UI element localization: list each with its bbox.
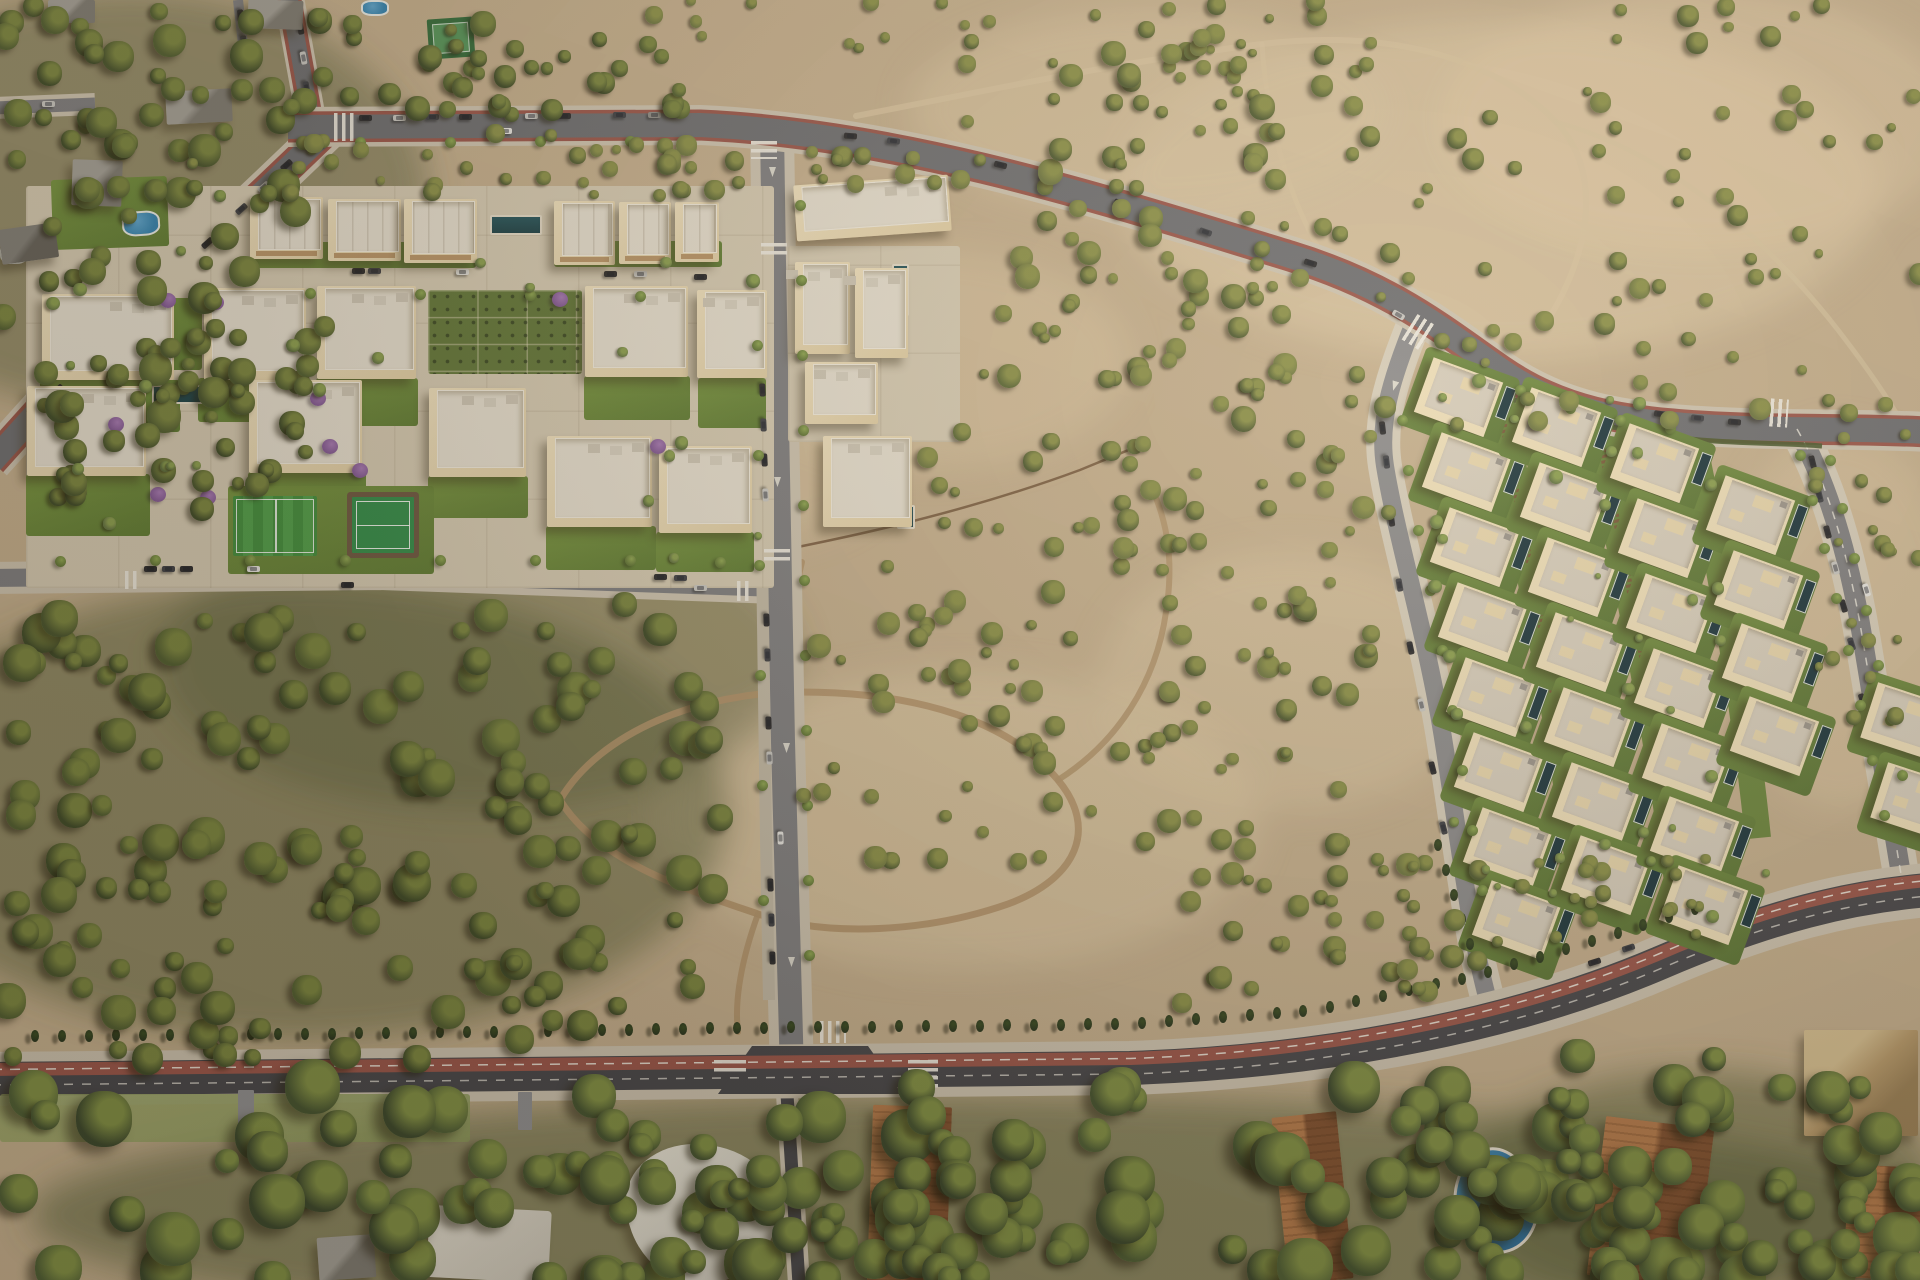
- tree: [1615, 4, 1627, 16]
- tree: [1332, 226, 1348, 242]
- tree: [1171, 625, 1191, 645]
- tree: [502, 996, 520, 1014]
- tree: [41, 877, 77, 913]
- tree: [1366, 1157, 1407, 1198]
- tree: [314, 316, 336, 338]
- tree: [1374, 396, 1396, 418]
- tree: [1207, 0, 1226, 15]
- tree: [1823, 135, 1836, 148]
- tree: [1277, 1238, 1333, 1280]
- tree: [596, 1109, 629, 1142]
- tree: [1257, 878, 1272, 893]
- tree: [934, 607, 953, 626]
- tree: [1796, 101, 1813, 118]
- tree: [1859, 1112, 1902, 1155]
- cypress-tree: [139, 1029, 147, 1041]
- tree: [1583, 87, 1592, 96]
- tree: [1345, 526, 1356, 537]
- tree: [1434, 1195, 1480, 1241]
- tree: [1243, 875, 1254, 886]
- tree: [685, 161, 698, 174]
- tree: [700, 1211, 738, 1249]
- tree: [1673, 196, 1684, 207]
- tree: [181, 962, 213, 994]
- tree: [1215, 99, 1226, 110]
- tree: [103, 430, 124, 451]
- tree: [259, 77, 285, 103]
- tree: [1840, 404, 1858, 422]
- tree: [1823, 1125, 1863, 1165]
- tree: [1291, 269, 1309, 287]
- tree: [1328, 1061, 1380, 1113]
- tree: [965, 1193, 1008, 1236]
- tree: [917, 447, 939, 469]
- cypress-tree: [733, 1022, 741, 1034]
- tree: [1462, 148, 1484, 170]
- tree: [643, 495, 655, 507]
- tree: [348, 849, 366, 867]
- tree: [35, 1245, 81, 1280]
- cypress-tree: [1562, 943, 1570, 955]
- tree: [1138, 224, 1161, 247]
- tree: [958, 55, 975, 72]
- tree: [536, 171, 550, 185]
- tree: [61, 130, 81, 150]
- tree: [37, 61, 62, 86]
- tree: [1349, 366, 1366, 383]
- tree: [356, 1180, 390, 1214]
- street-tree: [1457, 765, 1468, 776]
- tree: [43, 217, 62, 236]
- tree: [1834, 538, 1842, 546]
- tree: [187, 158, 198, 169]
- tree: [1101, 441, 1121, 461]
- tree: [981, 647, 993, 659]
- cypress-tree: [1246, 1009, 1254, 1021]
- tree: [1592, 144, 1606, 158]
- tree: [1221, 284, 1246, 309]
- tree: [1742, 1240, 1778, 1276]
- tree: [62, 758, 90, 786]
- cypress-tree: [58, 1030, 66, 1042]
- tree: [1462, 337, 1477, 352]
- tree: [286, 422, 304, 440]
- tree: [1567, 616, 1573, 622]
- tree: [1162, 2, 1176, 16]
- tree: [1314, 45, 1334, 65]
- tree: [176, 246, 186, 256]
- tree: [1675, 1102, 1710, 1137]
- tree: [1069, 200, 1087, 218]
- tree: [1706, 910, 1719, 923]
- cypress-tree: [1273, 1007, 1281, 1019]
- tree: [674, 672, 703, 701]
- tree: [474, 1188, 514, 1228]
- tree: [109, 1196, 145, 1232]
- tree: [1041, 580, 1065, 604]
- tree: [1520, 392, 1535, 407]
- tree: [1133, 95, 1149, 111]
- tree: [1686, 899, 1697, 910]
- tree: [249, 1174, 305, 1230]
- tree: [1346, 147, 1359, 160]
- tree: [120, 836, 138, 854]
- tree: [35, 109, 52, 126]
- tree: [237, 747, 260, 770]
- tree: [1549, 889, 1557, 897]
- tree: [1838, 432, 1850, 444]
- tree: [1590, 92, 1611, 113]
- street-tree: [150, 555, 161, 566]
- tree: [707, 804, 733, 830]
- tree: [1438, 393, 1447, 402]
- tree: [807, 634, 831, 658]
- tree: [1443, 650, 1456, 663]
- tree: [1130, 365, 1152, 387]
- tree: [249, 1018, 270, 1039]
- tree: [695, 726, 723, 754]
- tree: [881, 560, 894, 573]
- tree: [472, 67, 485, 80]
- tree: [41, 600, 78, 637]
- tree: [536, 882, 553, 899]
- tree: [1366, 911, 1384, 929]
- tree: [313, 383, 327, 397]
- tree: [1444, 909, 1466, 931]
- street-tree: [435, 555, 446, 566]
- tree: [1749, 398, 1771, 420]
- tree: [660, 257, 671, 268]
- street-tree: [1861, 605, 1872, 616]
- tree: [31, 1100, 60, 1129]
- tree: [1424, 1246, 1461, 1280]
- tree: [1157, 809, 1181, 833]
- tree: [669, 553, 679, 563]
- tree: [1162, 595, 1178, 611]
- tree: [690, 1134, 716, 1160]
- cypress-tree: [1326, 1001, 1334, 1013]
- tree: [485, 796, 507, 818]
- tree: [592, 32, 607, 47]
- tree: [205, 411, 218, 424]
- tree: [569, 147, 586, 164]
- tree: [295, 633, 331, 669]
- tree: [1412, 982, 1426, 996]
- tree: [439, 101, 456, 118]
- tree: [86, 107, 117, 138]
- tree: [1345, 395, 1357, 407]
- tree: [853, 43, 863, 53]
- tree: [160, 338, 180, 358]
- tree: [675, 436, 688, 449]
- tree: [1581, 910, 1598, 927]
- tree: [542, 1010, 562, 1030]
- tree: [1560, 1039, 1594, 1073]
- cypress-tree: [1057, 1019, 1065, 1031]
- tree: [1548, 1087, 1571, 1110]
- tree: [1363, 644, 1377, 658]
- tree: [1468, 1168, 1497, 1197]
- tree: [192, 470, 214, 492]
- street-tree: [1413, 525, 1424, 536]
- tree: [796, 788, 811, 803]
- street-tree: [1837, 503, 1848, 514]
- street-tree: [1819, 543, 1830, 554]
- tree: [46, 297, 60, 311]
- tree: [215, 123, 233, 141]
- tree: [908, 604, 926, 622]
- jacaranda-tree: [150, 487, 166, 502]
- tree: [1534, 858, 1545, 869]
- tree: [1221, 566, 1234, 579]
- tree: [403, 1045, 430, 1072]
- tree: [215, 1149, 240, 1174]
- tree: [65, 653, 82, 670]
- cypress-tree: [301, 1028, 309, 1040]
- tree: [247, 715, 272, 740]
- tree: [1138, 21, 1155, 38]
- tree: [927, 848, 948, 869]
- tree: [329, 1037, 361, 1069]
- tree: [8, 150, 27, 169]
- tree: [1172, 537, 1187, 552]
- tree: [1717, 0, 1735, 16]
- tree: [1230, 56, 1248, 74]
- tree: [460, 161, 474, 175]
- tree: [231, 79, 253, 101]
- tree: [1096, 1190, 1150, 1244]
- tree: [1391, 1106, 1421, 1136]
- tree: [883, 1189, 919, 1225]
- tree: [453, 622, 470, 639]
- street-tree: [757, 780, 768, 791]
- tree: [494, 65, 516, 87]
- tree: [931, 477, 948, 494]
- tree: [214, 190, 226, 202]
- tree: [112, 134, 137, 159]
- tree: [629, 137, 645, 153]
- tree: [217, 938, 234, 955]
- tree: [1492, 936, 1503, 947]
- tree: [1449, 817, 1459, 827]
- tree: [161, 77, 185, 101]
- tree: [832, 154, 842, 164]
- tree: [1186, 501, 1205, 520]
- tree: [343, 15, 362, 34]
- tree: [1276, 699, 1297, 720]
- tree: [1190, 533, 1207, 550]
- tree: [1015, 264, 1040, 289]
- tree: [1416, 1127, 1453, 1164]
- tree: [1670, 868, 1683, 881]
- street-tree: [1897, 770, 1908, 781]
- tree: [1344, 96, 1364, 116]
- tree: [638, 1167, 676, 1205]
- tree: [1325, 833, 1348, 856]
- tree: [1254, 597, 1267, 610]
- tree: [1594, 313, 1615, 334]
- tree: [0, 1174, 38, 1213]
- tree: [1257, 655, 1280, 678]
- tree: [1825, 651, 1840, 666]
- street-tree: [797, 350, 808, 361]
- street-tree: [625, 555, 636, 566]
- street-tree: [340, 555, 351, 566]
- tree: [541, 99, 563, 121]
- tree: [612, 592, 637, 617]
- tree: [1016, 736, 1032, 752]
- tree: [746, 1155, 779, 1188]
- cypress-tree: [463, 1026, 471, 1038]
- tree: [292, 975, 322, 1005]
- tree: [995, 305, 1012, 322]
- tree: [245, 473, 269, 497]
- cypress-tree: [1614, 927, 1622, 939]
- tree: [1086, 805, 1098, 817]
- tree: [555, 836, 581, 862]
- tree: [75, 177, 100, 202]
- tree: [1679, 148, 1691, 160]
- tree: [1254, 241, 1270, 257]
- tree: [1437, 534, 1447, 544]
- tree: [1760, 26, 1781, 47]
- tree: [1033, 850, 1047, 864]
- tree: [6, 800, 36, 830]
- cypress-tree: [1030, 1019, 1038, 1031]
- tree: [728, 1178, 750, 1200]
- tree: [1244, 981, 1259, 996]
- tree: [964, 34, 979, 49]
- tree: [1288, 895, 1309, 916]
- tree: [390, 741, 425, 776]
- tree: [1632, 447, 1643, 458]
- tree: [1185, 656, 1205, 676]
- tree: [1186, 810, 1202, 826]
- tree: [864, 846, 887, 869]
- tree: [1311, 75, 1333, 97]
- tree: [1182, 720, 1198, 736]
- tree: [128, 673, 166, 711]
- tree: [1702, 1047, 1726, 1071]
- tree: [1048, 58, 1059, 69]
- street-tree: [1843, 645, 1854, 656]
- tree: [1430, 515, 1444, 529]
- tree: [1782, 85, 1801, 104]
- tree: [216, 438, 236, 458]
- tree: [1321, 542, 1337, 558]
- tree: [1716, 106, 1730, 120]
- tree: [537, 622, 555, 640]
- tree: [1090, 1072, 1135, 1117]
- street-tree: [245, 555, 256, 566]
- tree: [1241, 211, 1255, 225]
- tree: [377, 176, 385, 184]
- tree: [500, 173, 512, 185]
- tree: [190, 497, 214, 521]
- tree: [1716, 188, 1733, 205]
- tree: [1226, 753, 1238, 765]
- tree: [1447, 128, 1468, 149]
- tree: [186, 180, 203, 197]
- tree: [192, 86, 209, 103]
- tree: [1397, 959, 1419, 981]
- cypress-tree: [652, 1023, 660, 1035]
- cypress-tree: [1484, 966, 1492, 978]
- tree: [1659, 383, 1677, 401]
- tree: [1312, 676, 1333, 697]
- tree: [895, 164, 915, 184]
- cypress-tree: [841, 1021, 849, 1033]
- street-tree: [535, 136, 546, 147]
- tree: [950, 487, 960, 497]
- tree: [1408, 861, 1418, 871]
- tree: [1059, 64, 1083, 88]
- tree: [1265, 169, 1285, 189]
- tree: [686, 0, 697, 6]
- tree: [847, 175, 865, 193]
- tree: [951, 170, 970, 189]
- tree: [139, 103, 164, 128]
- tree: [1559, 391, 1579, 411]
- tree: [523, 835, 555, 867]
- tree: [697, 31, 706, 40]
- tree: [1486, 1254, 1524, 1280]
- tree: [1895, 1252, 1920, 1280]
- tree: [136, 250, 161, 275]
- tree: [979, 369, 990, 380]
- tree: [1831, 1229, 1861, 1259]
- tree: [921, 667, 936, 682]
- tree: [1677, 5, 1699, 27]
- tree: [1414, 198, 1424, 208]
- tree: [974, 154, 986, 166]
- tree: [1108, 273, 1119, 284]
- tree: [383, 1085, 436, 1138]
- tree: [230, 39, 263, 72]
- tree: [1010, 853, 1027, 870]
- cypress-tree: [922, 1020, 930, 1032]
- tree: [1236, 39, 1246, 49]
- cypress-tree: [1192, 1013, 1200, 1025]
- tree: [611, 60, 628, 77]
- tree: [285, 1059, 340, 1114]
- cypress-tree: [1003, 1019, 1011, 1031]
- tree: [1232, 86, 1243, 97]
- tree: [103, 517, 116, 530]
- tree: [567, 1010, 598, 1041]
- cypress-tree: [895, 1020, 903, 1032]
- tree: [964, 518, 984, 538]
- tree: [746, 0, 758, 9]
- tree: [1248, 49, 1256, 57]
- tree: [1402, 272, 1416, 286]
- tree: [1156, 564, 1169, 577]
- tree: [504, 806, 532, 834]
- tree: [260, 185, 277, 202]
- tree: [1609, 121, 1623, 135]
- tree: [583, 680, 602, 699]
- tree: [1815, 249, 1824, 258]
- tree: [147, 997, 175, 1025]
- tree: [1855, 474, 1869, 488]
- cypress-tree: [1111, 1018, 1119, 1030]
- jacaranda-tree: [352, 463, 368, 478]
- tree: [1325, 577, 1336, 588]
- tree: [977, 826, 989, 838]
- tree: [1654, 1148, 1691, 1185]
- tree: [1352, 496, 1376, 520]
- tree: [1249, 94, 1275, 120]
